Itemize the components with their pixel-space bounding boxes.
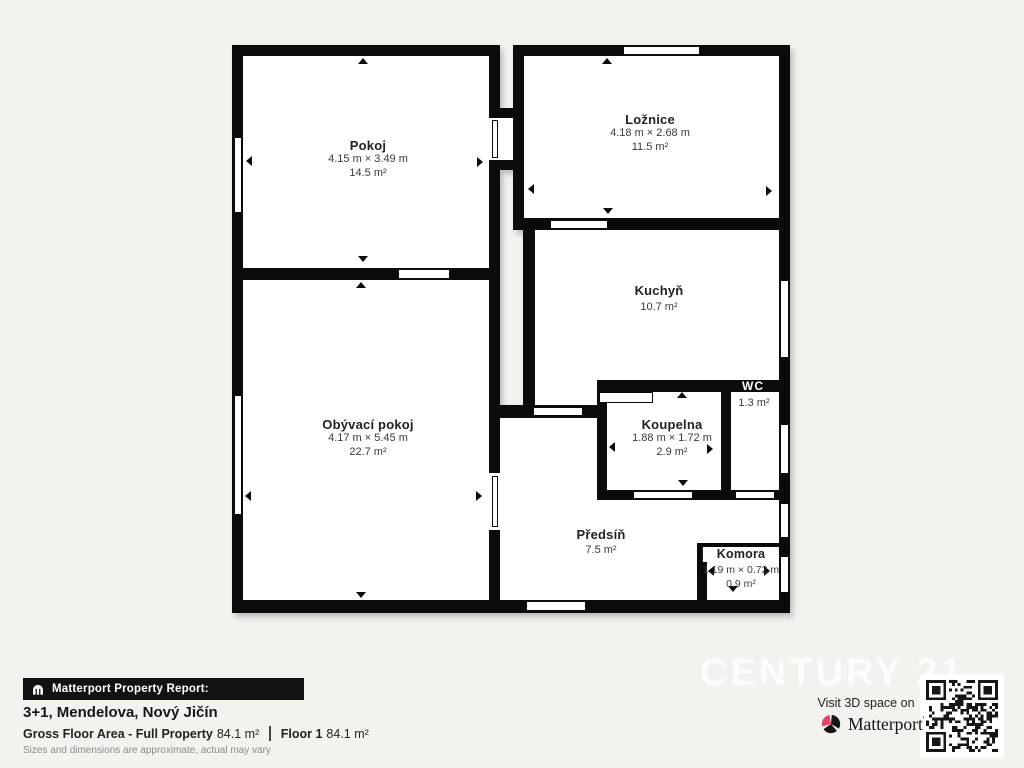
room-dimensions: 1.19 m × 0.72 m <box>703 564 779 578</box>
window <box>526 601 586 611</box>
report-bar: Matterport Property Report: <box>23 678 304 700</box>
window <box>780 280 789 358</box>
wall <box>232 45 500 56</box>
room-label-koupelna: Koupelna 1.88 m × 1.72 m 2.9 m² <box>632 417 712 459</box>
wall <box>232 268 500 280</box>
wall <box>489 268 500 473</box>
wall <box>232 45 243 613</box>
room-area: 10.7 m² <box>635 301 684 314</box>
room-name: Ložnice <box>610 112 690 127</box>
window <box>623 46 700 55</box>
wall <box>597 392 607 490</box>
wall <box>232 600 790 613</box>
room-area: 2.9 m² <box>632 446 712 459</box>
door-niche <box>500 118 513 160</box>
property-title: 3+1, Mendelova, Nový Jičín <box>23 704 218 721</box>
qr-code <box>920 674 1004 758</box>
wall <box>513 45 524 230</box>
window <box>550 220 608 229</box>
room-label-wc-area: 1.3 m² <box>738 397 769 410</box>
window <box>780 556 789 593</box>
matterport-wordmark: Matterport <box>848 714 924 735</box>
qr-pattern <box>926 680 998 752</box>
window <box>780 424 789 474</box>
room-label-wc: WC <box>742 379 764 393</box>
wall <box>523 230 535 405</box>
room-name: Komora <box>703 547 779 562</box>
room-name: Koupelna <box>632 417 712 432</box>
building-icon <box>31 682 45 696</box>
room-label-obyvaci-pokoj: Obývací pokoj 4.17 m × 5.45 m 22.7 m² <box>322 417 413 459</box>
door <box>492 476 498 527</box>
matterport-icon <box>820 713 842 735</box>
matterport-logo: Matterport <box>820 713 924 735</box>
room-name: Předsíň <box>576 527 625 542</box>
room-kuchyn-strip <box>535 380 597 405</box>
room-dimensions: 4.17 m × 5.45 m <box>322 432 413 446</box>
window <box>398 269 450 279</box>
door <box>599 392 653 403</box>
room-dimensions: 4.15 m × 3.49 m <box>328 153 408 167</box>
window <box>234 395 242 515</box>
room-area: 7.5 m² <box>576 544 625 557</box>
divider <box>269 726 271 741</box>
room-label-loznice: Ložnice 4.18 m × 2.68 m 11.5 m² <box>610 112 690 154</box>
room-area: 14.5 m² <box>328 167 408 180</box>
floor-value: 84.1 m² <box>326 727 368 741</box>
room-label-predsin: Předsíň 7.5 m² <box>576 527 625 557</box>
disclaimer-text: Sizes and dimensions are approximate, ac… <box>23 745 271 756</box>
window <box>234 137 242 213</box>
room-label-kuchyn: Kuchyň 10.7 m² <box>635 283 684 314</box>
room-dimensions: 1.88 m × 1.72 m <box>632 432 712 446</box>
room-name: Obývací pokoj <box>322 417 413 432</box>
wall <box>721 380 731 490</box>
window <box>735 491 775 499</box>
room-area: 0.9 m² <box>703 578 779 591</box>
wall <box>489 45 500 108</box>
room-area: 22.7 m² <box>322 446 413 459</box>
floor-label: Floor 1 <box>281 727 323 741</box>
door <box>492 120 498 158</box>
wall <box>489 170 500 268</box>
window <box>533 407 583 416</box>
floor-area-stats: Gross Floor Area - Full Property 84.1 m²… <box>23 726 369 741</box>
wall <box>489 530 500 600</box>
window <box>780 503 789 538</box>
gross-floor-area-value: 84.1 m² <box>217 727 259 741</box>
report-bar-label: Matterport Property Report: <box>52 683 209 695</box>
window <box>633 491 693 499</box>
gross-floor-area-label: Gross Floor Area - Full Property <box>23 727 213 741</box>
room-name: Kuchyň <box>635 283 684 298</box>
room-predsin-west <box>500 418 597 600</box>
room-area: 1.3 m² <box>738 397 769 410</box>
room-area: 11.5 m² <box>610 141 690 154</box>
room-label-komora: Komora 1.19 m × 0.72 m 0.9 m² <box>703 547 779 591</box>
room-label-pokoj: Pokoj 4.15 m × 3.49 m 14.5 m² <box>328 138 408 180</box>
room-name: Pokoj <box>328 138 408 153</box>
room-dimensions: 4.18 m × 2.68 m <box>610 127 690 141</box>
visit-3d-text: Visit 3D space on <box>815 696 917 710</box>
